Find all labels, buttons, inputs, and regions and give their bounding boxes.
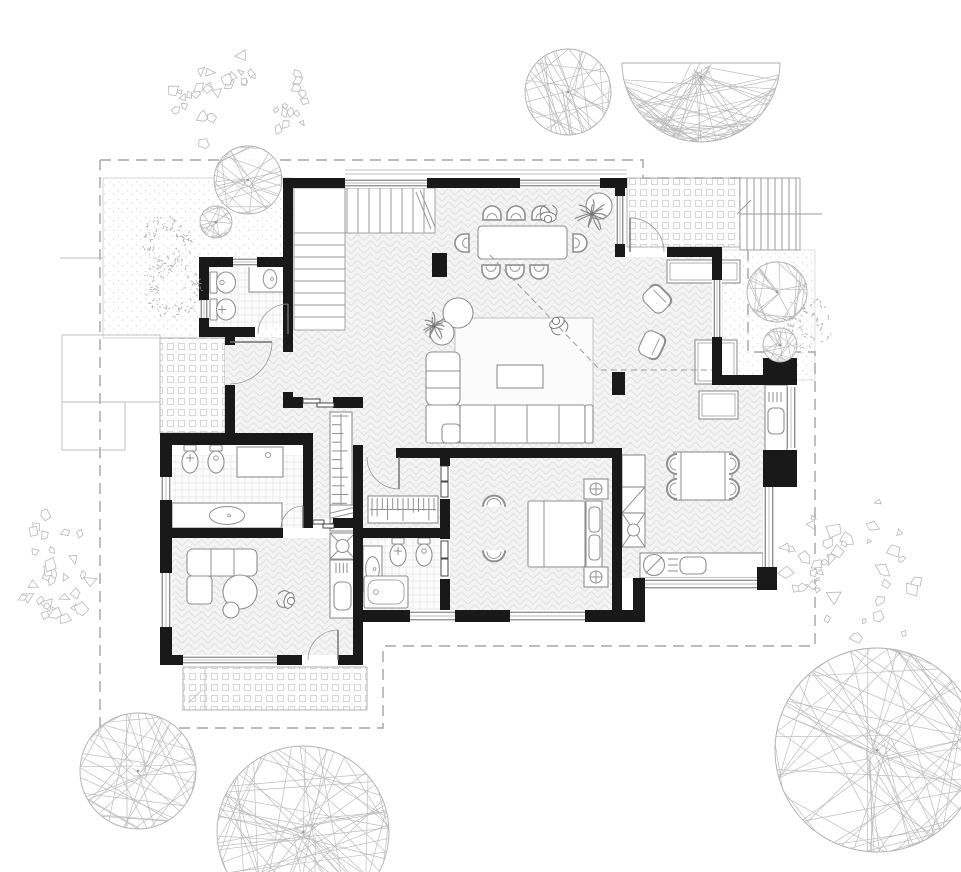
dining-chair (455, 234, 469, 252)
living-corridor-sliding-door (303, 399, 320, 403)
hall-floor (225, 337, 293, 433)
terrace-ne (627, 178, 740, 247)
wall (333, 518, 353, 528)
wall (283, 397, 303, 408)
sofa-module (460, 405, 585, 443)
corridor-study-sliding-door (313, 520, 324, 524)
coffee-bar-sink (768, 408, 784, 434)
study-corner-sofa (187, 549, 257, 576)
wall (199, 327, 255, 337)
wall (277, 655, 302, 665)
rock-scatter (778, 499, 922, 643)
wall (396, 448, 622, 458)
kitchen-north-counter (699, 391, 738, 419)
wall (440, 499, 450, 539)
wall (712, 337, 722, 375)
dining-chair (507, 206, 525, 220)
floor-plan-svg (0, 0, 961, 872)
wall (338, 655, 363, 665)
tree (200, 206, 232, 238)
wall (763, 450, 797, 487)
washing-machine-dial (336, 540, 349, 553)
wall (612, 372, 625, 395)
living-corridor-sliding-door (317, 403, 334, 407)
wall (612, 458, 622, 610)
tree (747, 262, 807, 322)
dining-chair (506, 265, 524, 279)
guest-wc-vanity-basin (263, 270, 276, 289)
coffee-table (497, 365, 543, 388)
bed-mattress (528, 501, 585, 567)
dining-chair (530, 265, 548, 279)
rock-scatter (18, 509, 97, 624)
wall (363, 528, 440, 538)
wall (160, 500, 172, 573)
dressing-pocket-door (441, 466, 448, 481)
stool (442, 424, 460, 443)
floor-plan-page (0, 0, 961, 872)
bed-pillow (589, 535, 600, 560)
kitchen-tall-unit (622, 455, 645, 487)
wall (353, 445, 363, 665)
tree (622, 63, 780, 142)
pergola (62, 402, 125, 450)
bathroom2-toilet (208, 451, 224, 473)
wall (615, 244, 625, 257)
wall (615, 188, 625, 196)
entrance-porch (160, 338, 225, 433)
wall (353, 610, 410, 622)
kitchen-oven-dial (628, 524, 640, 536)
wall (455, 610, 510, 622)
dining-table (478, 226, 567, 259)
masterbath-pocket-door (441, 559, 448, 576)
wall (440, 579, 450, 610)
wall (160, 655, 183, 665)
bathroom2-bidet-stem (184, 445, 196, 451)
kitchen-sink (680, 557, 706, 574)
wall (225, 337, 235, 345)
terrace-south (183, 667, 367, 710)
tree (775, 648, 961, 852)
study-small-table (223, 602, 239, 618)
utility-sink (334, 582, 351, 610)
tree (217, 746, 389, 872)
sofa-module (426, 352, 460, 405)
bed-pillow (589, 507, 600, 532)
corridor-study-sliding-door (323, 524, 334, 528)
bathroom2-vanity-basin (209, 507, 244, 525)
tree (525, 49, 611, 135)
masterbath-pocket-door (441, 541, 448, 558)
wall (440, 458, 450, 466)
kitchen-table (674, 452, 732, 500)
dining-chair (482, 265, 500, 279)
wall (160, 433, 313, 445)
wall (333, 397, 363, 408)
tree (80, 713, 196, 829)
dining-chair (573, 234, 587, 252)
masterbath-bidet-stem (392, 538, 404, 544)
masterbath-toilet (416, 544, 432, 566)
wall (667, 247, 722, 257)
wall (633, 578, 645, 622)
sofa-armrest (585, 405, 593, 443)
wall (160, 528, 283, 538)
wall (160, 445, 172, 477)
bathroom2-shower (237, 447, 283, 477)
sideboard (667, 260, 740, 283)
bathroom2-toilet-stem (210, 445, 222, 451)
rock-scatter (169, 50, 256, 148)
dressing-pocket-door (441, 482, 448, 497)
wall (432, 253, 447, 277)
tree (214, 146, 282, 214)
stair-upper-flight (294, 188, 435, 233)
wall (712, 375, 763, 385)
masterbath-toilet-stem (418, 538, 430, 544)
dining-chair (483, 206, 501, 220)
wall (303, 445, 313, 528)
masterbath-bathtub (364, 576, 408, 608)
wall (757, 567, 777, 590)
rock-scatter (273, 70, 309, 135)
pergola (62, 335, 160, 402)
study-corner-sofa (187, 576, 212, 604)
